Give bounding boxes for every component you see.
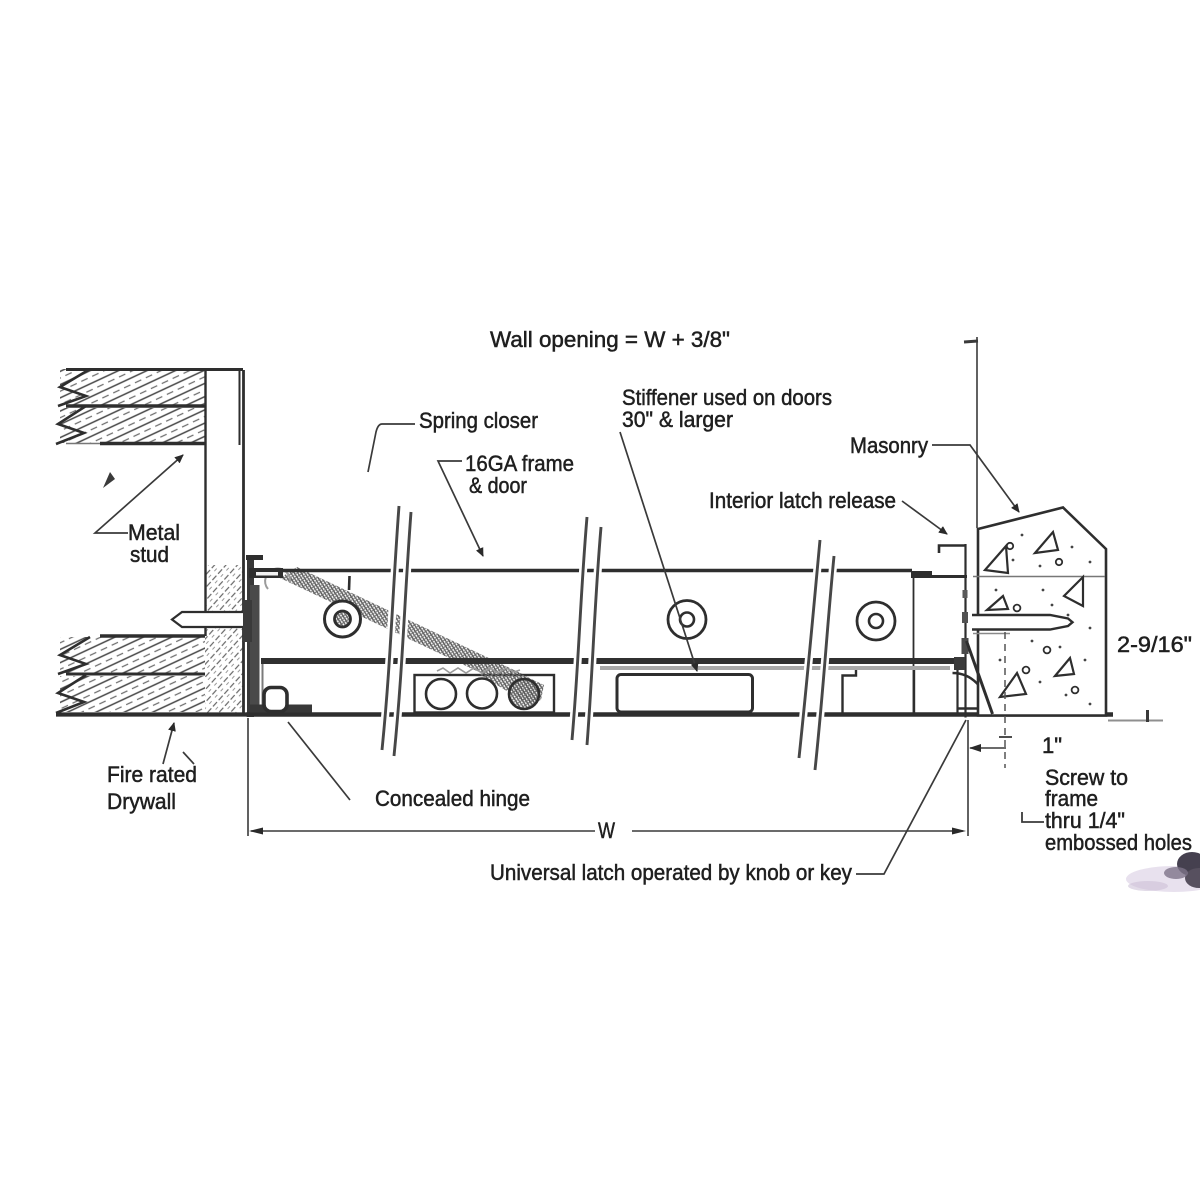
svg-text:W: W	[598, 818, 615, 843]
svg-text:Masonry: Masonry	[850, 433, 928, 458]
svg-text:Spring closer: Spring closer	[419, 408, 538, 433]
svg-text:embossed holes: embossed holes	[1045, 830, 1192, 855]
svg-text:Drywall: Drywall	[107, 789, 176, 814]
svg-text:Concealed hinge: Concealed hinge	[375, 786, 530, 811]
svg-text:stud: stud	[130, 542, 169, 567]
svg-text:2-9/16": 2-9/16"	[1117, 632, 1192, 657]
svg-text:Universal latch operated by kn: Universal latch operated by knob or key	[490, 860, 852, 885]
svg-text:Interior latch release: Interior latch release	[709, 488, 896, 513]
svg-text:1": 1"	[1042, 733, 1062, 758]
svg-text:30" & larger: 30" & larger	[622, 407, 733, 432]
svg-text:Fire rated: Fire rated	[107, 762, 197, 787]
svg-text:& door: & door	[469, 473, 527, 498]
svg-text:Wall opening = W + 3/8": Wall opening = W + 3/8"	[490, 327, 730, 352]
